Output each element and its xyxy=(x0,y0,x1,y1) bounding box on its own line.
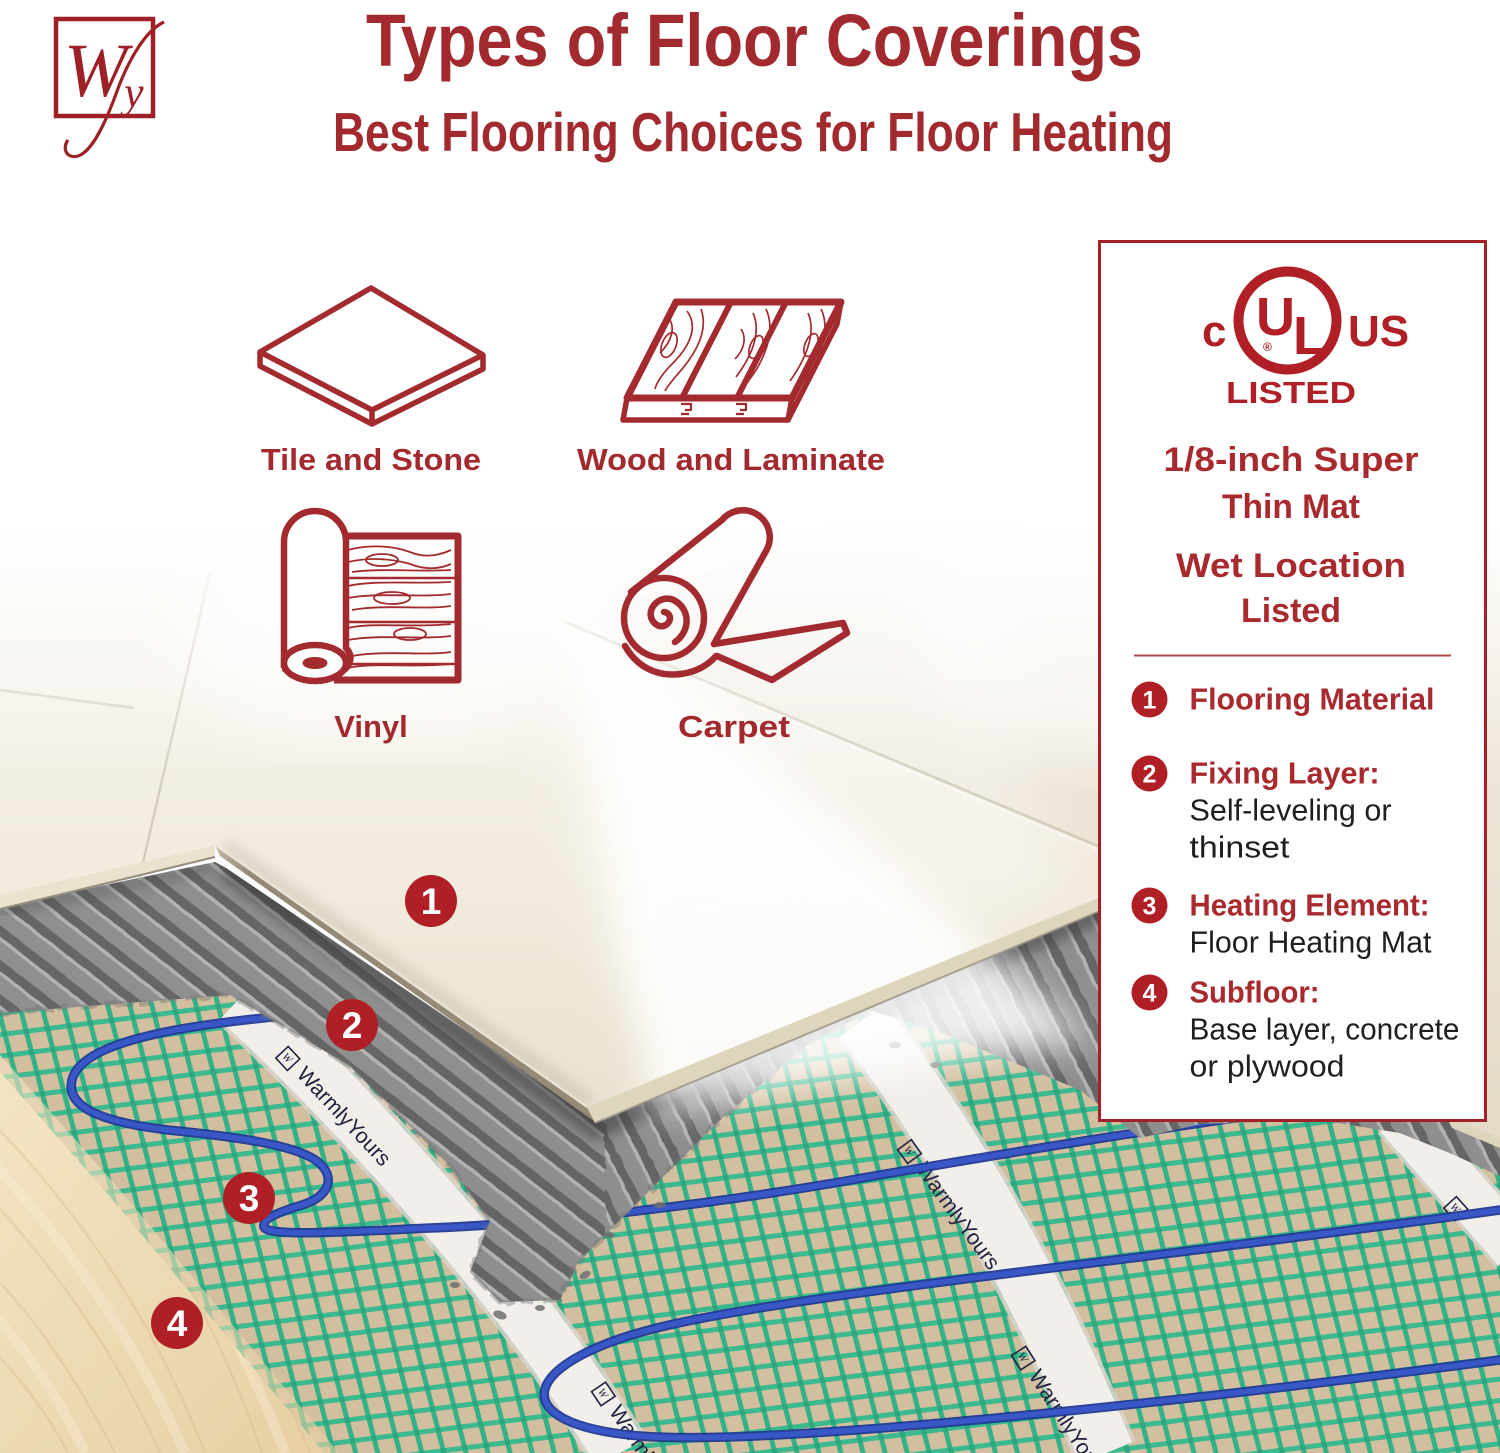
svg-text:Best Flooring Choices for Floo: Best Flooring Choices for Floor Heating xyxy=(333,101,1173,163)
svg-text:4: 4 xyxy=(167,1303,188,1344)
svg-text:Heating Element:: Heating Element: xyxy=(1190,888,1430,923)
svg-text:Carpet: Carpet xyxy=(678,709,790,744)
svg-text:Fixing Layer:: Fixing Layer: xyxy=(1190,756,1380,791)
svg-text:4: 4 xyxy=(1143,980,1157,1008)
svg-text:1: 1 xyxy=(1143,687,1157,715)
svg-text:LISTED: LISTED xyxy=(1226,375,1356,410)
svg-text:3: 3 xyxy=(239,1178,260,1219)
svg-text:Flooring Material: Flooring Material xyxy=(1190,682,1435,717)
svg-text:2: 2 xyxy=(342,1005,363,1046)
svg-text:Listed: Listed xyxy=(1241,592,1341,630)
svg-text:c: c xyxy=(1202,307,1226,356)
svg-text:Wet Location: Wet Location xyxy=(1176,547,1406,585)
svg-text:or plywood: or plywood xyxy=(1190,1049,1345,1084)
svg-text:1: 1 xyxy=(421,881,442,922)
svg-text:L: L xyxy=(1293,306,1326,366)
svg-text:3: 3 xyxy=(1143,893,1157,921)
svg-text:Subfloor:: Subfloor: xyxy=(1190,975,1320,1010)
svg-text:Self-leveling or: Self-leveling or xyxy=(1190,793,1392,828)
svg-text:US: US xyxy=(1348,307,1409,356)
svg-text:®: ® xyxy=(1263,340,1272,354)
svg-text:Base layer, concrete: Base layer, concrete xyxy=(1190,1012,1460,1047)
svg-text:1/8-inch Super: 1/8-inch Super xyxy=(1164,441,1419,479)
svg-text:Floor Heating Mat: Floor Heating Mat xyxy=(1190,925,1432,960)
svg-text:U: U xyxy=(1256,287,1295,347)
svg-text:2: 2 xyxy=(1143,761,1157,789)
svg-text:Tile and Stone: Tile and Stone xyxy=(261,442,481,477)
svg-text:thinset: thinset xyxy=(1190,830,1290,865)
svg-text:Wood and Laminate: Wood and Laminate xyxy=(577,442,885,477)
svg-text:Vinyl: Vinyl xyxy=(334,709,408,744)
svg-text:Thin Mat: Thin Mat xyxy=(1222,488,1360,526)
svg-text:Types of Floor Coverings: Types of Floor Coverings xyxy=(366,0,1143,82)
